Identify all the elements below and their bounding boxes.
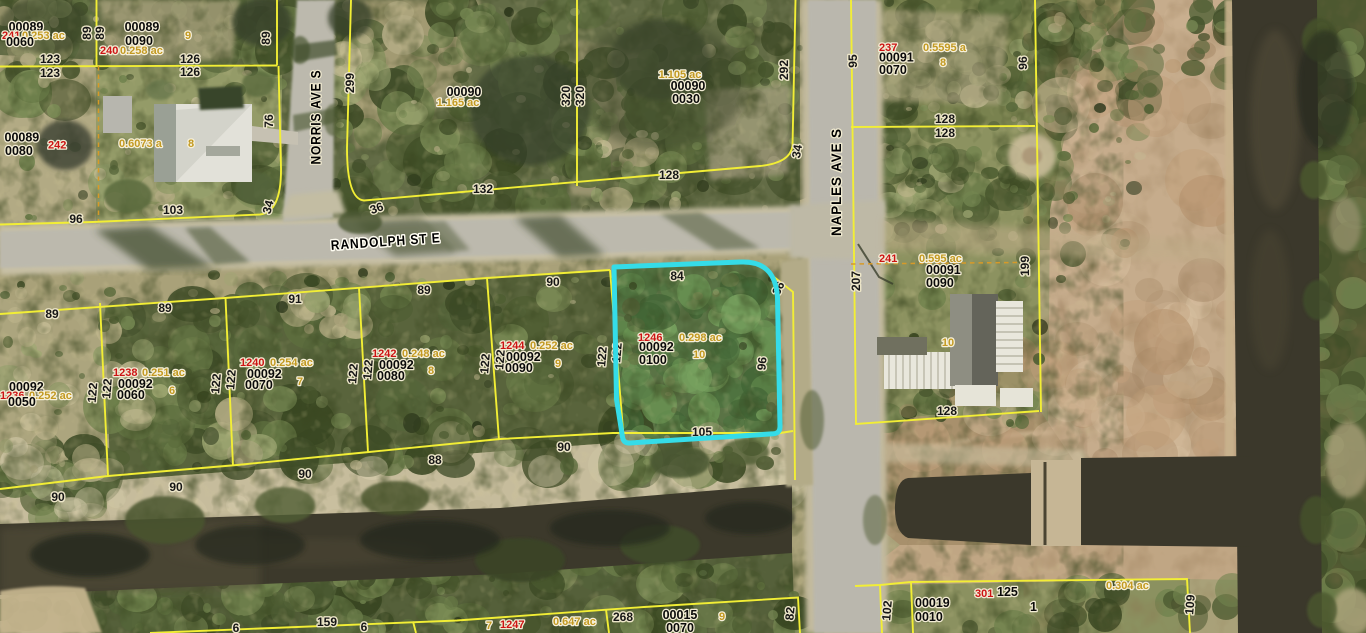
svg-text:125: 125	[997, 585, 1018, 599]
svg-text:299: 299	[343, 73, 357, 93]
svg-text:0010: 0010	[915, 610, 943, 624]
svg-text:89: 89	[417, 283, 431, 297]
svg-text:0050: 0050	[8, 395, 36, 409]
svg-text:NAPLES AVE S: NAPLES AVE S	[829, 128, 844, 236]
svg-text:7: 7	[486, 620, 492, 632]
svg-text:1: 1	[1030, 600, 1037, 614]
svg-text:89: 89	[158, 301, 172, 315]
svg-text:122: 122	[360, 359, 376, 380]
svg-text:122: 122	[594, 346, 610, 367]
svg-text:0090: 0090	[505, 361, 533, 375]
svg-text:91: 91	[288, 292, 302, 306]
svg-text:84: 84	[670, 269, 684, 283]
svg-text:0070: 0070	[879, 63, 907, 77]
svg-text:10: 10	[693, 349, 705, 361]
svg-text:00019: 00019	[915, 596, 950, 610]
svg-text:89: 89	[93, 26, 107, 40]
svg-text:0.647 ac: 0.647 ac	[553, 616, 596, 628]
svg-text:320: 320	[573, 86, 587, 106]
svg-text:89: 89	[80, 26, 94, 40]
svg-text:0100: 0100	[639, 353, 667, 367]
svg-text:128: 128	[937, 404, 957, 418]
svg-text:7: 7	[297, 376, 303, 388]
svg-text:0060: 0060	[117, 388, 145, 402]
svg-text:00089: 00089	[125, 20, 160, 34]
svg-text:76: 76	[262, 114, 276, 128]
svg-text:199: 199	[1018, 256, 1032, 276]
svg-text:96: 96	[1016, 56, 1030, 70]
svg-text:8: 8	[428, 365, 434, 377]
svg-text:0.304 ac: 0.304 ac	[1106, 580, 1149, 592]
svg-text:96: 96	[754, 356, 769, 371]
svg-text:242: 242	[48, 140, 66, 152]
svg-text:8: 8	[188, 138, 194, 150]
svg-text:0.258 ac: 0.258 ac	[120, 45, 163, 57]
svg-text:292: 292	[777, 60, 791, 80]
svg-text:102: 102	[879, 600, 895, 621]
svg-text:00091: 00091	[926, 263, 961, 277]
svg-text:320: 320	[559, 86, 573, 106]
svg-text:6: 6	[169, 385, 175, 397]
svg-text:9: 9	[719, 611, 725, 623]
svg-text:89: 89	[45, 307, 59, 321]
svg-text:240: 240	[100, 45, 118, 57]
svg-text:90: 90	[51, 490, 65, 504]
svg-text:88: 88	[428, 453, 442, 467]
svg-text:0080: 0080	[5, 144, 33, 158]
svg-text:00015: 00015	[663, 608, 698, 622]
svg-text:207: 207	[849, 271, 863, 291]
svg-text:123: 123	[40, 52, 60, 66]
svg-text:1247: 1247	[500, 619, 524, 631]
svg-text:128: 128	[935, 112, 955, 126]
svg-text:126: 126	[180, 65, 200, 79]
svg-text:301: 301	[975, 588, 993, 600]
svg-text:6: 6	[233, 621, 240, 633]
svg-text:126: 126	[180, 52, 200, 66]
svg-text:9: 9	[185, 30, 191, 42]
svg-text:122: 122	[223, 369, 239, 390]
svg-text:1.165 ac: 1.165 ac	[437, 97, 480, 109]
svg-text:NORRIS AVE S: NORRIS AVE S	[309, 70, 324, 165]
svg-text:122: 122	[85, 382, 101, 403]
svg-text:90: 90	[169, 480, 183, 494]
svg-text:122: 122	[345, 363, 361, 384]
svg-text:132: 132	[473, 182, 493, 196]
svg-text:0.6073 a: 0.6073 a	[119, 138, 163, 150]
svg-text:34: 34	[789, 143, 805, 159]
svg-text:6: 6	[361, 620, 368, 633]
svg-text:0030: 0030	[672, 92, 700, 106]
svg-text:122: 122	[208, 373, 224, 394]
svg-text:95: 95	[846, 54, 860, 68]
svg-text:128: 128	[935, 126, 955, 140]
svg-text:109: 109	[1182, 594, 1198, 615]
svg-text:0.5595 a: 0.5595 a	[923, 42, 967, 54]
svg-text:0080: 0080	[377, 369, 405, 383]
svg-text:122: 122	[99, 378, 115, 399]
svg-text:00089: 00089	[5, 131, 40, 145]
svg-text:90: 90	[557, 440, 571, 454]
svg-text:00092: 00092	[639, 340, 674, 354]
svg-text:122: 122	[477, 353, 493, 374]
svg-text:159: 159	[317, 615, 337, 629]
svg-text:123: 123	[40, 66, 60, 80]
svg-text:128: 128	[659, 168, 679, 182]
svg-text:0.298 ac: 0.298 ac	[679, 332, 722, 344]
svg-text:0070: 0070	[666, 621, 694, 633]
svg-text:10: 10	[942, 337, 954, 349]
svg-text:0060: 0060	[6, 35, 34, 49]
svg-text:89: 89	[259, 31, 273, 45]
svg-text:0070: 0070	[245, 378, 273, 392]
svg-text:241: 241	[879, 253, 897, 265]
svg-text:96: 96	[69, 212, 83, 226]
svg-text:0090: 0090	[926, 276, 954, 290]
svg-text:90: 90	[546, 275, 560, 289]
svg-text:90: 90	[298, 467, 312, 481]
svg-text:103: 103	[163, 203, 183, 217]
svg-text:00090: 00090	[671, 79, 706, 93]
svg-text:268: 268	[613, 610, 633, 624]
svg-text:9: 9	[555, 358, 561, 370]
svg-text:8: 8	[940, 57, 946, 69]
svg-text:82: 82	[782, 606, 797, 621]
